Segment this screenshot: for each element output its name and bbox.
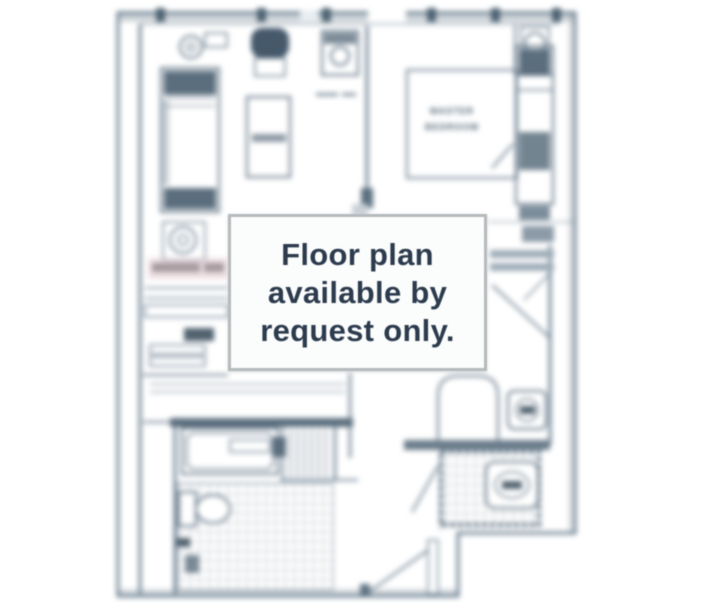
left-closet	[145, 222, 228, 366]
ceiling-fan-icon	[180, 33, 227, 58]
door-swings	[360, 466, 438, 596]
sink-icon	[508, 391, 546, 429]
vanity-area	[404, 376, 550, 450]
watermark	[148, 258, 228, 279]
toilet-bathroom-icon	[179, 492, 230, 526]
notice-box: Floor plan available by request only.	[228, 214, 487, 371]
bathroom	[170, 418, 353, 590]
armchair-icon	[438, 376, 498, 442]
master-bedroom-label-line2: BEDROOM	[425, 122, 479, 132]
living-fixtures	[247, 28, 358, 177]
toilet-wc-icon	[486, 462, 538, 508]
floor-plan-page: MASTER BEDROOM	[0, 0, 712, 606]
master-bedroom: MASTER BEDROOM	[407, 27, 553, 220]
master-bed-icon	[516, 46, 553, 220]
bed-icon	[161, 68, 219, 212]
wc-room	[441, 451, 539, 525]
notice-line-3: request only.	[260, 312, 455, 350]
master-bedroom-label-line1: MASTER	[430, 106, 474, 116]
left-bedroom	[161, 33, 227, 212]
right-closet	[490, 226, 554, 338]
notice-line-2: available by	[268, 274, 447, 312]
notice-line-1: Floor plan	[281, 236, 434, 274]
washer-icon	[322, 31, 358, 75]
